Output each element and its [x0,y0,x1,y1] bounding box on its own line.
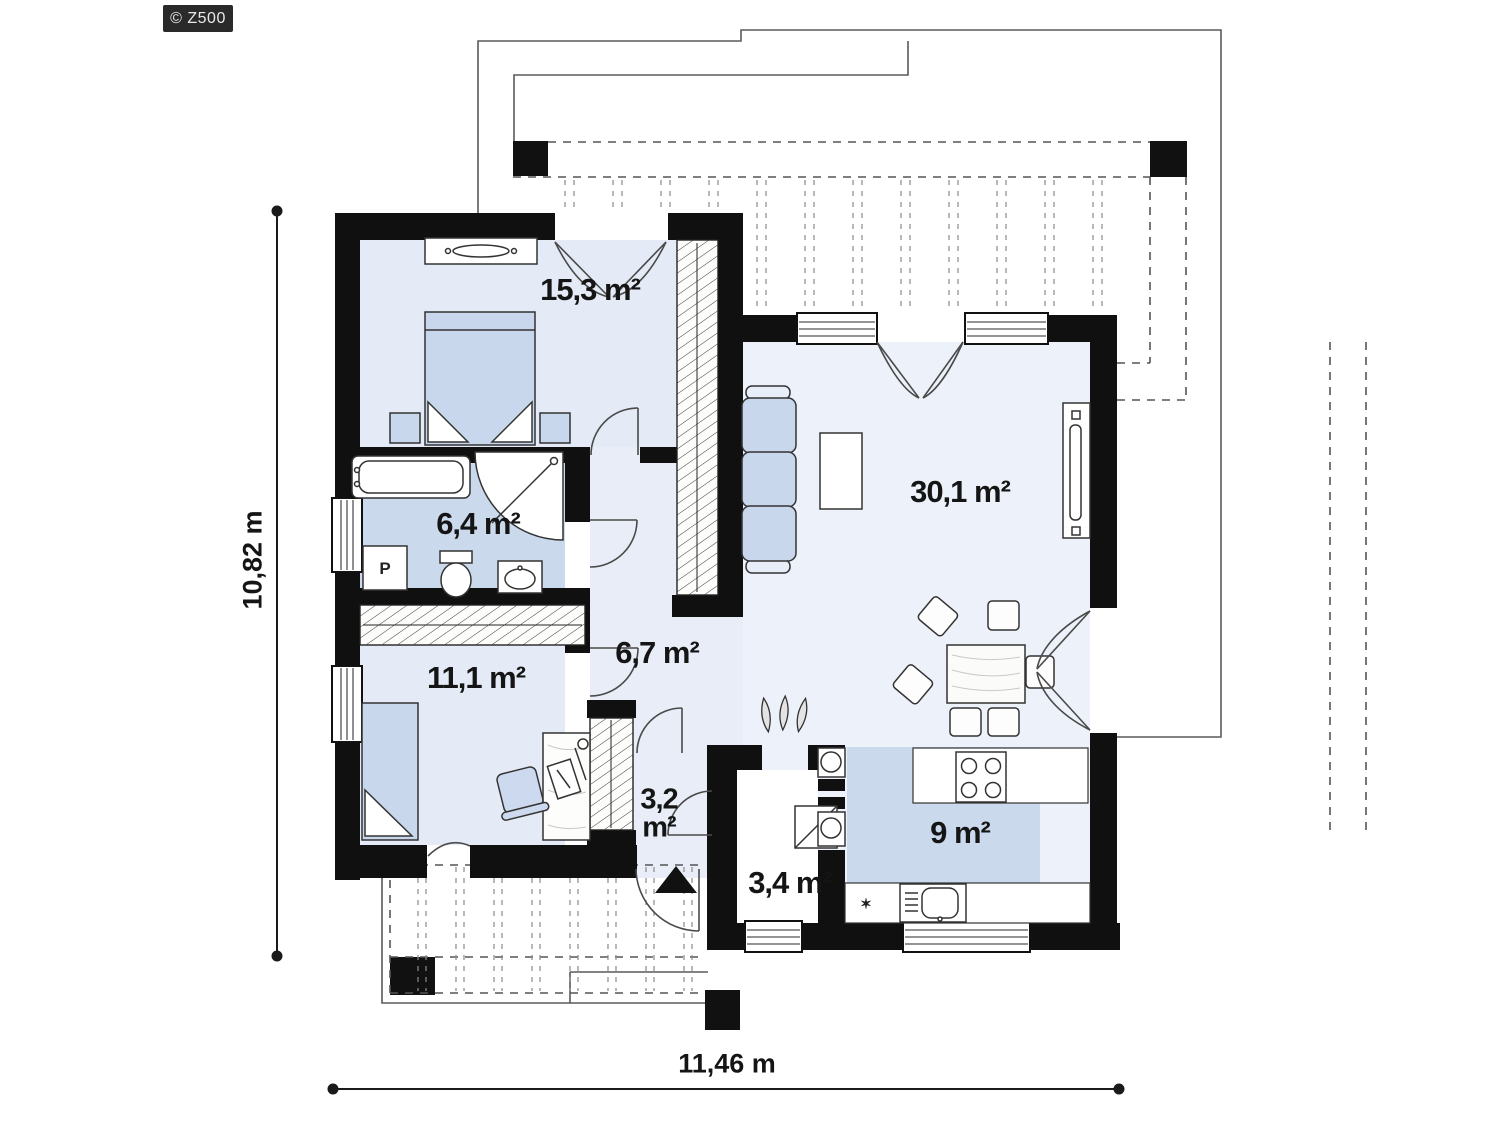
window [965,313,1048,344]
window [332,498,362,572]
window [903,921,1030,952]
porch-post [705,990,740,1030]
sink [498,561,542,593]
desk [543,733,590,840]
kitchen-sink [900,884,966,922]
terrace-post [1150,141,1187,177]
room-label-vestibule-line2: m² [642,812,675,845]
wardrobe-column [677,240,718,595]
double-bed [425,312,535,445]
cooktop [956,752,1006,802]
toilet [440,551,472,597]
window [745,921,802,952]
room-label-living: 30,1 m² [910,474,1010,510]
room-label-bedroom1: 15,3 m² [540,272,640,308]
sofa [742,386,796,573]
porch-boundary [390,865,705,993]
room-label-kitchen: 9 m² [930,815,990,851]
porch-post [390,957,435,995]
room-label-hall: 6,7 m² [615,635,699,671]
window [332,666,362,742]
entrance-porch [382,862,740,1030]
room-label-bathroom: 6,4 m² [436,506,520,542]
dresser [425,238,537,264]
room-label-utility: 3,4 m² [748,865,832,901]
window [797,313,877,344]
coffee-table [820,433,862,509]
single-bed [362,703,418,840]
floor-plan-page: © Z500 10,82 m 11,46 m 15,3 m² 30,1 m² 6… [0,0,1496,1130]
kitchen-counter-bottom [845,883,1090,923]
tv-radiator-unit [1063,403,1090,538]
dimension-height-label: 10,82 m [238,510,269,609]
terrace-post [513,141,548,176]
wardrobe-closet [590,718,633,830]
kitchen-asterisk-marker: ✶ [860,896,872,913]
dimension-width-label: 11,46 m [678,1049,776,1080]
nightstand [540,413,570,443]
washing-machine-label: P [379,559,390,579]
room-label-bedroom2: 11,1 m² [427,660,525,696]
bathtub [352,456,470,498]
z500-logo: © Z500 [163,5,233,32]
floor-plan-drawing [0,0,1496,1130]
nightstand [390,413,420,443]
wardrobe-band [360,605,585,645]
